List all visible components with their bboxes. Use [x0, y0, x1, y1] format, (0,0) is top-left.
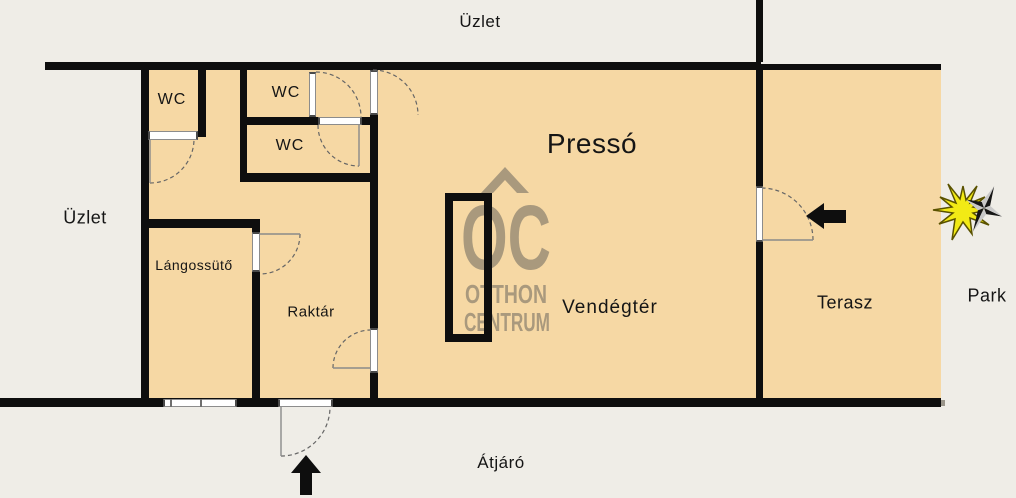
wall-terasz-divider-upper [756, 70, 763, 186]
compass-burst [933, 184, 989, 240]
label-wc2: WC [272, 84, 301, 102]
label-terasz: Terasz [817, 293, 873, 314]
wall-langos-right [252, 272, 260, 398]
langossuto-door [252, 232, 260, 272]
wall-langos-right-stub [252, 219, 260, 232]
window-mullion-2 [200, 399, 202, 407]
north-star-compass-icon [933, 178, 1012, 240]
wall-wc1-right [198, 70, 206, 137]
wall-wcblock-left [240, 70, 247, 182]
label-passage: Átjáró [477, 453, 524, 473]
label-vendegter: Vendégtér [562, 297, 658, 319]
entrance-arrow-up-icon [291, 455, 321, 495]
raktar-door [370, 328, 378, 373]
label-wc1: WC [158, 91, 187, 109]
wc1-door-sill [148, 131, 198, 140]
hall-wc3-door [318, 117, 362, 125]
label-shop-left: Üzlet [63, 208, 107, 229]
label-raktar: Raktár [287, 304, 334, 321]
label-wc3: WC [276, 137, 305, 155]
wall-terasz-divider-lower [756, 242, 763, 398]
terasz-door [756, 186, 763, 242]
hall-presso-door [370, 70, 378, 115]
wall-left [141, 62, 149, 407]
window-mullion-1 [170, 399, 172, 407]
entrance-door-sill [278, 399, 333, 407]
wall-langos-top [149, 219, 260, 228]
entrance-door-arc [281, 407, 330, 456]
label-presso: Pressó [547, 128, 637, 160]
wall-wc-divider-left [240, 117, 318, 125]
label-shop-top: Üzlet [459, 12, 500, 32]
wall-mid-vertical-lower [370, 373, 378, 398]
wall-mid-vertical-upper [370, 115, 378, 328]
wall-top-left [45, 62, 761, 70]
wall-wc3-bottom [240, 173, 378, 182]
wall-top-right [761, 64, 941, 70]
wc2-door [309, 72, 316, 117]
compass-star [955, 178, 1012, 240]
label-park: Park [967, 286, 1006, 307]
label-langossuto: Lángossütő [155, 257, 232, 273]
wall-terasz-divider-above [756, 0, 763, 62]
wall-bottom-end-cap [941, 400, 945, 406]
floor-plan: OC OTTHON CENTRUM Üzlet Üzlet [0, 0, 1016, 498]
